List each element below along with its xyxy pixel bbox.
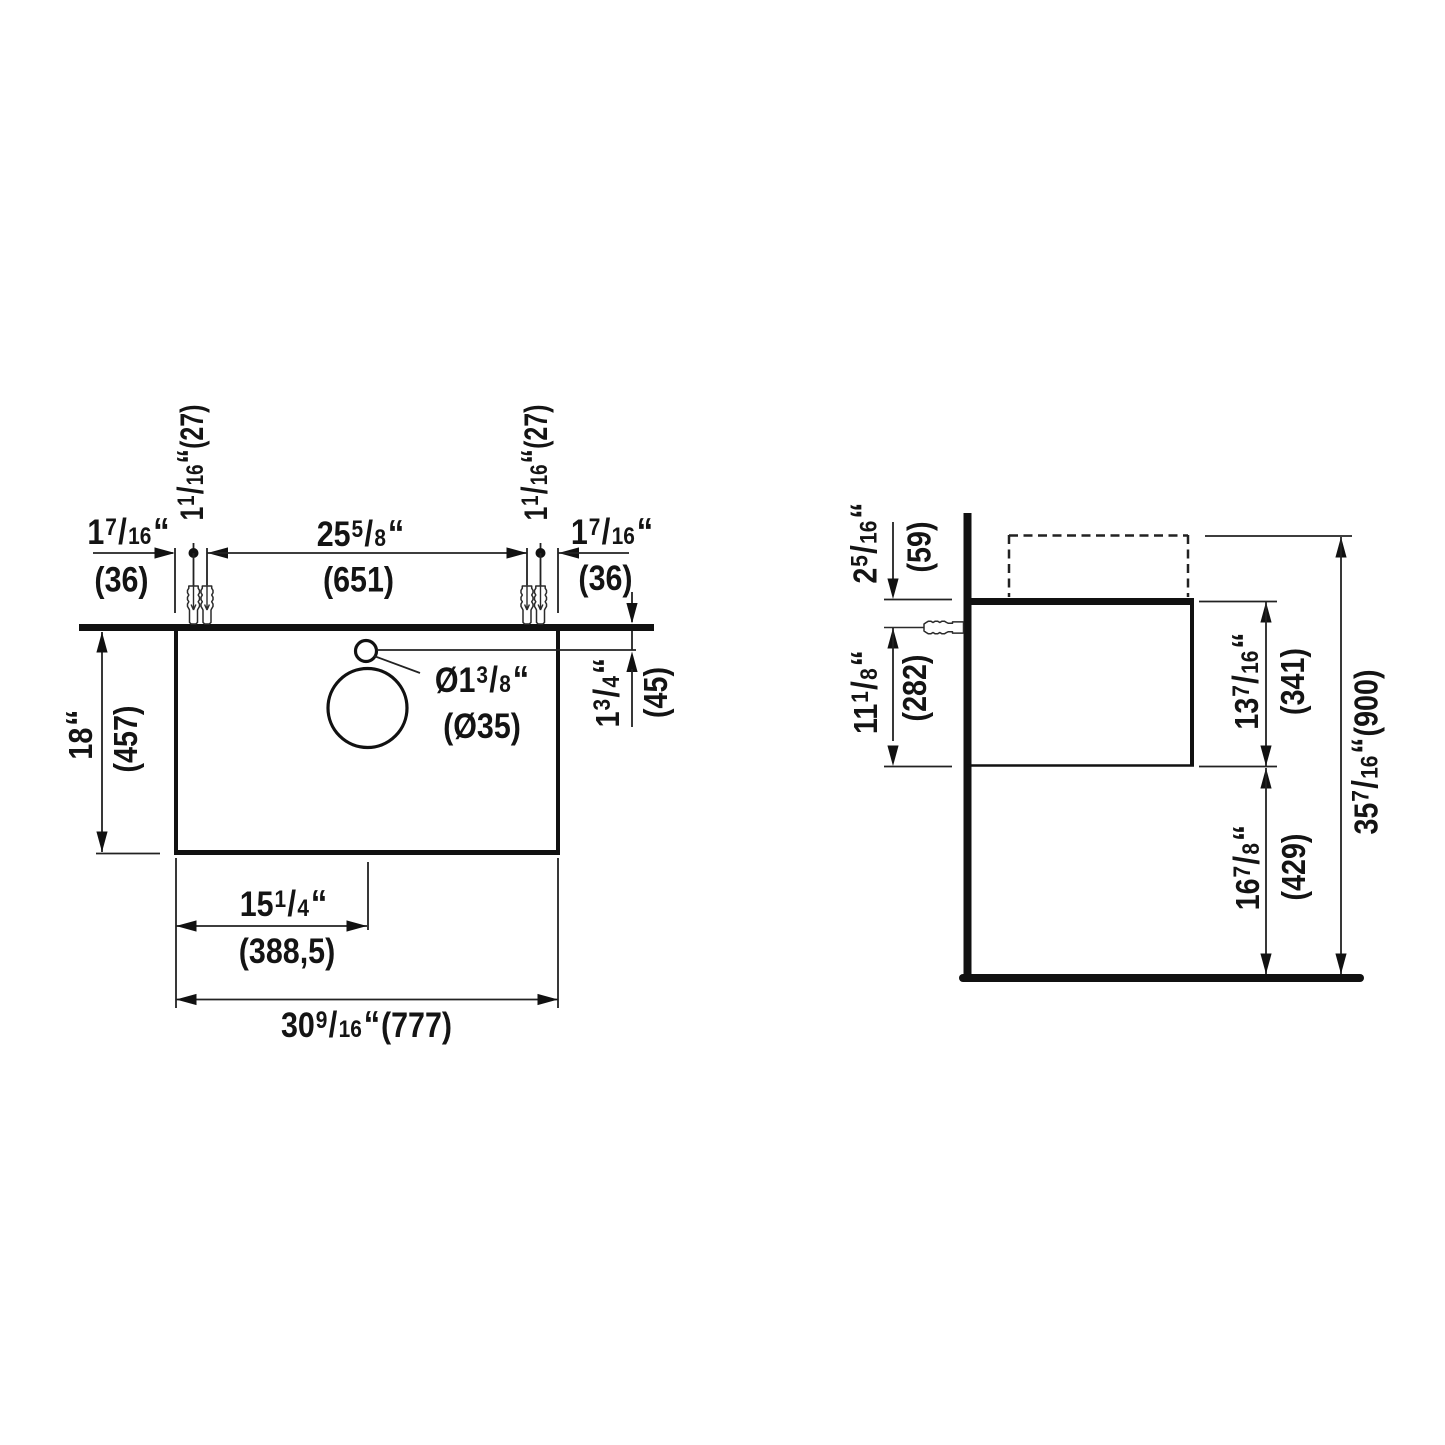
svg-text:(457): (457) (107, 706, 144, 773)
svg-text:25/16“: 25/16“ (842, 502, 885, 583)
svg-text:18“: 18“ (58, 709, 101, 759)
svg-text:(59): (59) (901, 521, 938, 572)
svg-text:309/16“(777): 309/16“(777) (281, 1003, 452, 1046)
svg-text:111/8“: 111/8“ (843, 650, 886, 734)
svg-text:(341): (341) (1274, 648, 1311, 715)
svg-text:255/8“: 255/8“ (317, 512, 405, 555)
svg-text:(651): (651) (323, 559, 394, 598)
svg-text:(45): (45) (637, 667, 674, 718)
svg-text:11/16“(27): 11/16“(27) (514, 404, 556, 520)
svg-text:17/16“: 17/16“ (571, 510, 653, 553)
svg-text:151/4“: 151/4“ (240, 882, 328, 925)
svg-text:13/4“: 13/4“ (585, 658, 628, 728)
svg-text:Ø13/8“: Ø13/8“ (435, 658, 529, 701)
svg-text:17/16“: 17/16“ (87, 510, 169, 553)
svg-text:(282): (282) (896, 655, 933, 722)
svg-text:11/16“(27): 11/16“(27) (170, 404, 212, 520)
svg-text:(36): (36) (578, 558, 632, 597)
svg-text:(429): (429) (1275, 834, 1312, 901)
svg-text:(Ø35): (Ø35) (443, 706, 521, 745)
svg-text:357/16“(900): 357/16“(900) (1343, 669, 1386, 834)
svg-text:137/16“: 137/16“ (1224, 632, 1267, 729)
svg-text:(36): (36) (94, 559, 148, 598)
svg-text:(388,5): (388,5) (239, 931, 335, 970)
svg-text:167/8“: 167/8“ (1225, 825, 1268, 911)
